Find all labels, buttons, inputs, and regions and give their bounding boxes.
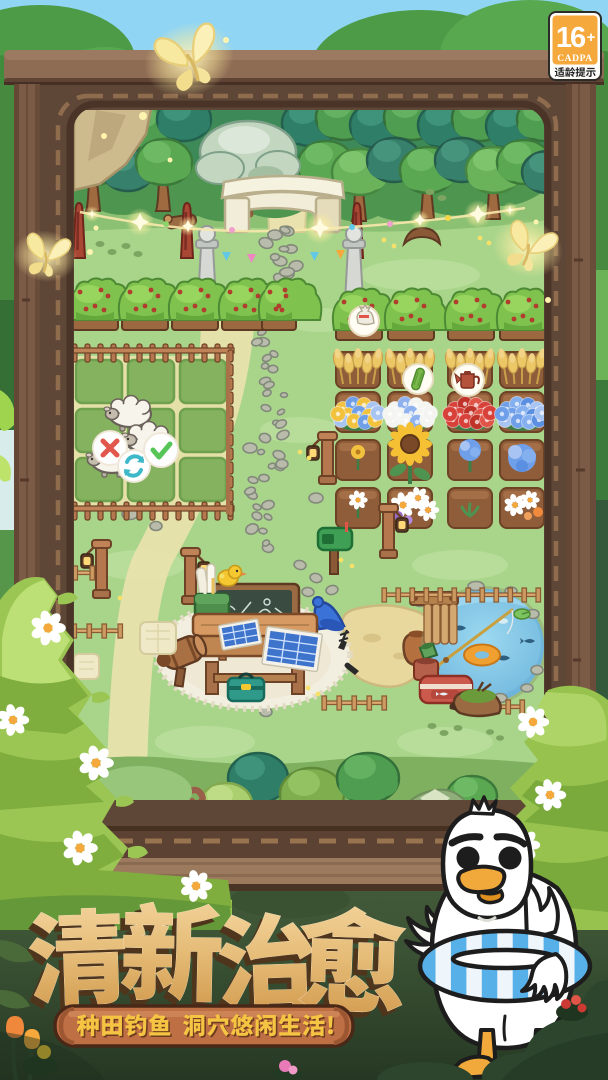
svg-text:16: 16 — [556, 22, 586, 54]
svg-text:+: + — [587, 29, 596, 46]
svg-text:CADPA: CADPA — [557, 54, 593, 64]
